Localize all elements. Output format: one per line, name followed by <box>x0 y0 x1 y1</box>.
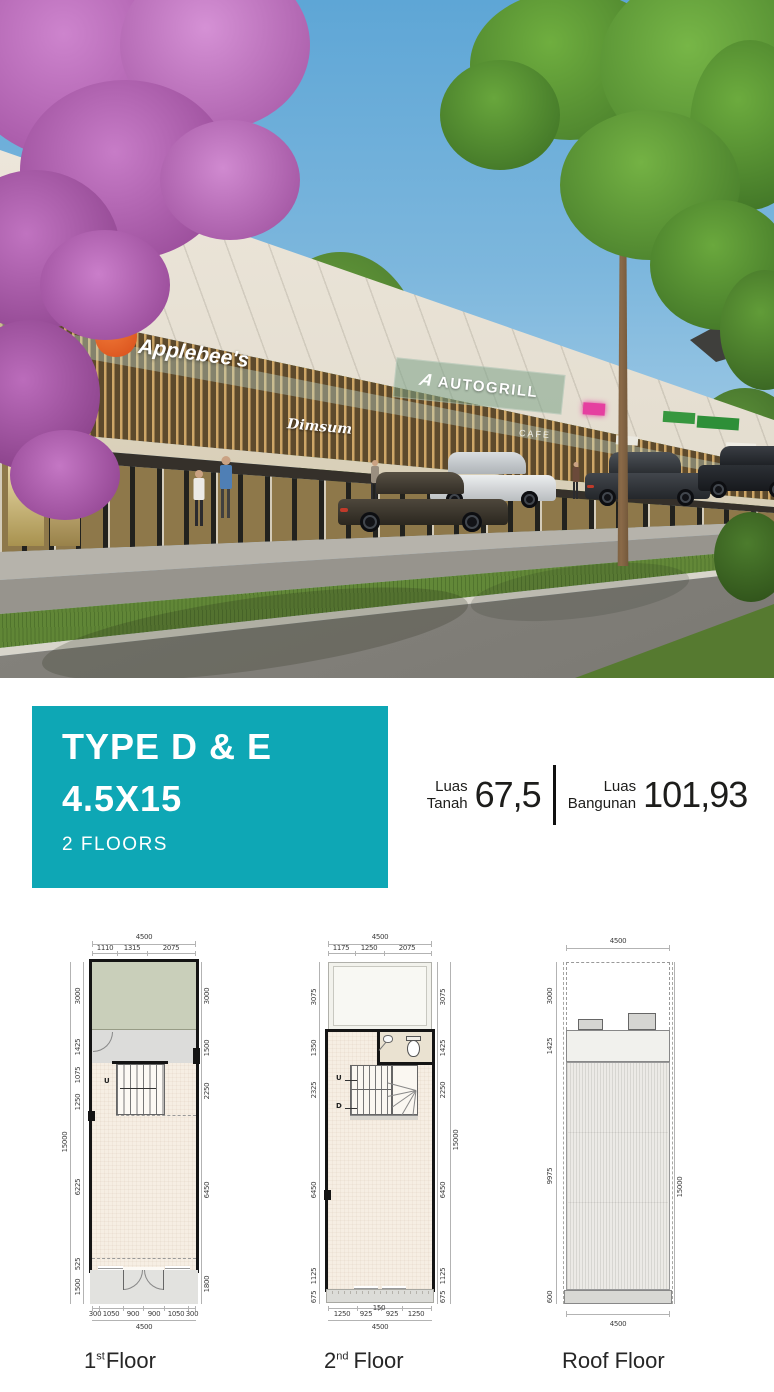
stat-divider <box>553 765 556 825</box>
car-wheel <box>710 481 727 498</box>
door-leaf <box>163 1270 164 1290</box>
dim-label: 4500 <box>136 1323 153 1331</box>
dim-label: 6450 <box>439 1182 447 1199</box>
dashed-line <box>672 962 673 1304</box>
roof-box <box>578 1019 603 1030</box>
plan-label-word: Floor <box>354 1348 404 1373</box>
plan-label-suffix: nd <box>336 1351 348 1363</box>
area-stats: Luas Tanah 67,5 Luas Bangunan 101,93 <box>400 752 774 838</box>
dim-label: 600 <box>546 1291 554 1303</box>
dim-label: 925 <box>386 1310 398 1318</box>
green-sign <box>663 411 696 424</box>
car-roof <box>376 472 464 494</box>
stat-value: 101,93 <box>643 774 747 816</box>
dim-label: 675 <box>439 1291 447 1303</box>
pedestrian <box>193 470 205 528</box>
dim-label: 15000 <box>676 1177 684 1198</box>
dim-label: 3000 <box>546 988 554 1005</box>
dim-label: 2250 <box>439 1082 447 1099</box>
dim-label: 300 <box>186 1310 198 1318</box>
stat-label-bottom: Bangunan <box>568 795 636 812</box>
window-line <box>165 1268 190 1269</box>
dim-label: 300 <box>89 1310 101 1318</box>
dim-label: 1050 <box>168 1310 185 1318</box>
dim-label: 900 <box>148 1310 160 1318</box>
dim-label: 525 <box>74 1258 82 1270</box>
dim-label: 4500 <box>136 933 153 941</box>
purple-tree-foliage <box>10 430 120 520</box>
dim-label: 6450 <box>310 1182 318 1199</box>
dim-label: 925 <box>360 1310 372 1318</box>
dim-label: 9975 <box>546 1168 554 1185</box>
dim-label: 1075 <box>74 1067 82 1084</box>
car-wheel <box>677 489 694 506</box>
dim-label: 1800 <box>203 1276 211 1293</box>
dim-label: 1500 <box>74 1279 82 1296</box>
dim-label: 1125 <box>439 1268 447 1285</box>
plan-label-suffix: st <box>96 1351 105 1363</box>
dim-label: 6225 <box>74 1179 82 1196</box>
door-leaf <box>123 1270 124 1290</box>
dim-label: 2075 <box>399 944 416 952</box>
car-roof <box>448 452 526 474</box>
dashed-line <box>563 962 564 1304</box>
dim-label: 4500 <box>372 933 389 941</box>
dim-label: 2325 <box>310 1082 318 1099</box>
autogrill-logo-icon: A <box>416 370 435 391</box>
dim-label: 2250 <box>203 1083 211 1100</box>
cafe-sign: CAFE <box>519 428 552 440</box>
purple-tree-foliage <box>40 230 170 340</box>
dim-label: 1125 <box>310 1268 318 1285</box>
plan-label-number: 2 <box>324 1348 336 1373</box>
stat-label: Luas Tanah <box>427 778 468 813</box>
dim-label: 1350 <box>310 1040 318 1057</box>
tree-foliage <box>440 60 560 170</box>
autogrill-sign: AUTOGRILL <box>437 373 539 400</box>
purple-tree-foliage <box>160 120 300 240</box>
roof-shade-line <box>568 1202 668 1203</box>
dim-label: 1250 <box>74 1094 82 1111</box>
type-title-line1: TYPE D & E <box>62 726 272 768</box>
canopy-ticks <box>326 1291 434 1294</box>
car-taillight <box>587 485 594 488</box>
canopy-slab <box>564 1290 672 1304</box>
metal-roof <box>566 1062 670 1290</box>
dim-label: 1425 <box>546 1038 554 1055</box>
stat-label-top: Luas <box>427 778 468 795</box>
dim-label: 1425 <box>74 1039 82 1056</box>
dim-label: 3075 <box>439 989 447 1006</box>
plan-label-2nd-floor: 2ndFloor <box>324 1348 404 1374</box>
stat-label: Luas Bangunan <box>568 778 636 813</box>
plan-label-word: Floor <box>106 1348 156 1373</box>
stat-luas-bangunan: Luas Bangunan 101,93 <box>568 774 748 816</box>
dim-label: 4500 <box>372 1323 389 1331</box>
dim-label: 1250 <box>334 1310 351 1318</box>
dim-label: 1425 <box>439 1040 447 1057</box>
dim-label: 15000 <box>452 1130 460 1151</box>
pedestrian <box>219 456 232 520</box>
car-wheel <box>462 512 482 532</box>
stat-value: 67,5 <box>475 774 541 816</box>
void-inner <box>333 966 427 1026</box>
dim-label: 1175 <box>333 944 350 952</box>
exterior-walls <box>89 959 199 1273</box>
car-wheel <box>769 481 774 498</box>
dim-label: 4500 <box>610 937 627 945</box>
stat-luas-tanah: Luas Tanah 67,5 <box>427 774 541 816</box>
type-subtitle: 2 FLOORS <box>62 834 168 856</box>
gray-sedan-car <box>585 452 710 506</box>
pink-neon-sign <box>583 402 606 416</box>
dim-label: 1250 <box>408 1310 425 1318</box>
dim-label: 3000 <box>74 988 82 1005</box>
car-wheel <box>599 489 616 506</box>
dim-label: 1110 <box>97 944 114 952</box>
dim-label: 3075 <box>310 989 318 1006</box>
dark-sedan-car <box>338 472 508 532</box>
flat-roof-strip <box>566 1030 670 1062</box>
dim-label: 2075 <box>163 944 180 952</box>
dim-label: 15000 <box>61 1132 69 1153</box>
dim-label: 150 <box>373 1304 385 1312</box>
brochure-page: Applebee's A AUTOGRILL Dimsum CAFE <box>0 0 774 1392</box>
hero-render: Applebee's A AUTOGRILL Dimsum CAFE <box>0 0 774 678</box>
dim-label: 675 <box>310 1291 318 1303</box>
plan-label-word: Roof Floor <box>562 1348 665 1373</box>
window-line <box>98 1268 123 1269</box>
dim-label: 1500 <box>203 1040 211 1057</box>
car-taillight <box>340 508 348 512</box>
black-sedan-car <box>698 446 774 498</box>
plan-label-1st-floor: 1stFloor <box>84 1348 156 1374</box>
type-title-line2: 4.5X15 <box>62 778 182 820</box>
dim-label: 6450 <box>203 1182 211 1199</box>
car-wheel <box>360 512 380 532</box>
dim-label: 1250 <box>361 944 378 952</box>
roof-box <box>628 1013 656 1030</box>
plan-label-roof-floor: Roof Floor <box>562 1348 665 1374</box>
exterior-walls <box>325 1029 435 1292</box>
dim-label: 1315 <box>124 944 141 952</box>
type-banner: TYPE D & E 4.5X15 2 FLOORS <box>32 706 388 888</box>
dim-label: 3000 <box>203 988 211 1005</box>
roof-shade-line <box>568 1132 668 1133</box>
dim-label: 4500 <box>610 1320 627 1328</box>
stat-label-bottom: Tanah <box>427 795 468 812</box>
dim-label: 900 <box>127 1310 139 1318</box>
pedestrian <box>572 462 580 500</box>
car-wheel <box>521 491 538 508</box>
plan-label-number: 1 <box>84 1348 96 1373</box>
stat-label-top: Luas <box>568 778 636 795</box>
dim-label: 1050 <box>103 1310 120 1318</box>
